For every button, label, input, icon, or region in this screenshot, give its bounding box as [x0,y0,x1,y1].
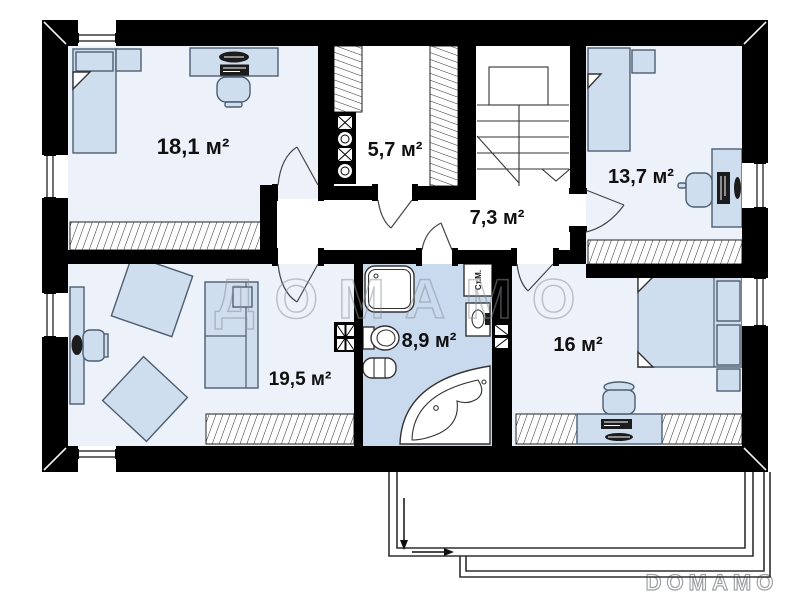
desk-chair-top-left [217,77,250,102]
watermark-corner: DOMAMO [646,570,779,595]
wall-bedroom2-bottom [586,264,742,278]
wall-bedroom1-closet [318,46,334,186]
watermark-center: ДОМАМО [215,267,596,330]
label-bathroom: 8,9 м² [402,330,457,352]
radiator [363,358,396,378]
wall-left [42,20,68,472]
desk-chair-top-right [686,173,712,207]
window-left-2 [42,291,68,339]
nightstand-bottom-right [717,369,740,391]
single-bed-top-right [588,48,630,151]
label-bedroom-top-right: 13,7 м² [608,166,674,188]
wardrobe-closet-left [334,46,362,112]
nightstand-top-right [632,50,655,73]
dresser-top-left [116,49,141,71]
floor-plan-page: Ст.М. [0,0,800,601]
wall-hall-top-b [412,186,476,200]
single-bed-top-left [73,49,116,153]
wall-top [42,20,768,46]
window-top [76,20,118,46]
window-left-1 [42,153,68,200]
wall-bottom [42,446,768,472]
wall-mid-b [318,250,422,264]
wall-mid-a [68,250,260,264]
wardrobe-bedroom-top-right [588,240,742,264]
desk-chair-bottom-right [603,390,635,414]
label-hallway: 7,3 м² [470,207,525,229]
label-room-bottom-left: 19,5 м² [269,369,332,390]
wall-stairs-bedroom2 [570,46,586,188]
chimney-block-closet [334,112,356,184]
wall-mid-c [452,250,517,264]
window-right-1 [742,161,768,210]
wall-hall-top-a [318,186,378,200]
wardrobe-room-bottom-left [206,414,354,444]
double-bed [638,277,742,367]
lower-floor-outline [389,472,770,577]
window-bottom [76,446,118,472]
desk-chair-bottom-left [83,330,105,361]
window-right-2 [742,276,768,328]
wardrobe-bedroom-top-left [70,222,262,250]
wall-closet-stairs [458,46,476,186]
label-closet: 5,7 м² [368,139,423,161]
wall-right [742,20,768,472]
label-bedroom-bottom-right: 16 м² [553,334,603,356]
wardrobe-closet-right [430,46,458,186]
floor-plan-drawing: Ст.М. [0,0,800,601]
wardrobe-bedroom-bottom-right-right [662,414,742,444]
wardrobe-bedroom-bottom-right-left [516,414,577,444]
label-bedroom-top-left: 18,1 м² [157,134,230,159]
